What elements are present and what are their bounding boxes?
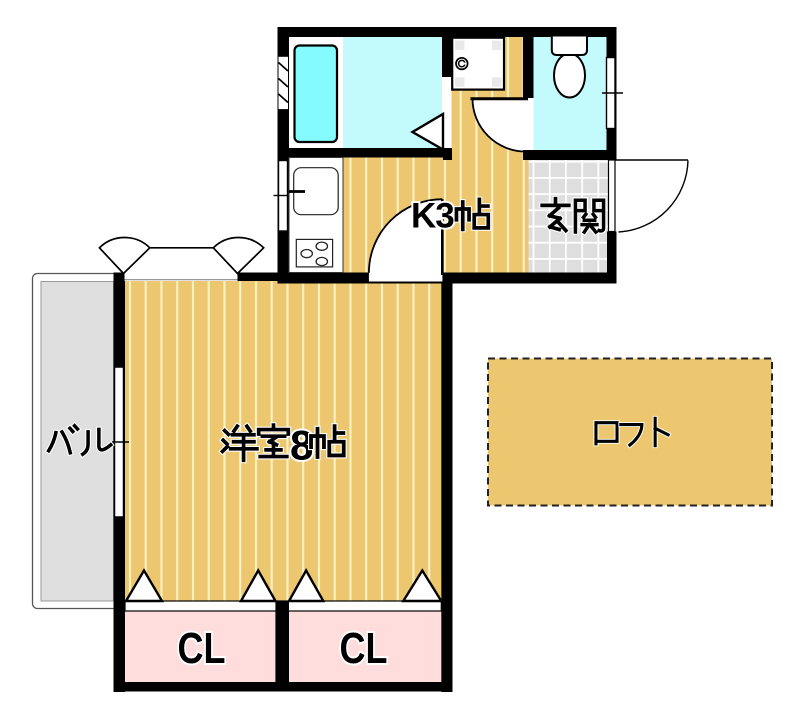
svg-text:CL: CL <box>178 624 226 673</box>
svg-text:CL: CL <box>340 624 388 673</box>
svg-text:K3: K3 <box>411 197 454 236</box>
